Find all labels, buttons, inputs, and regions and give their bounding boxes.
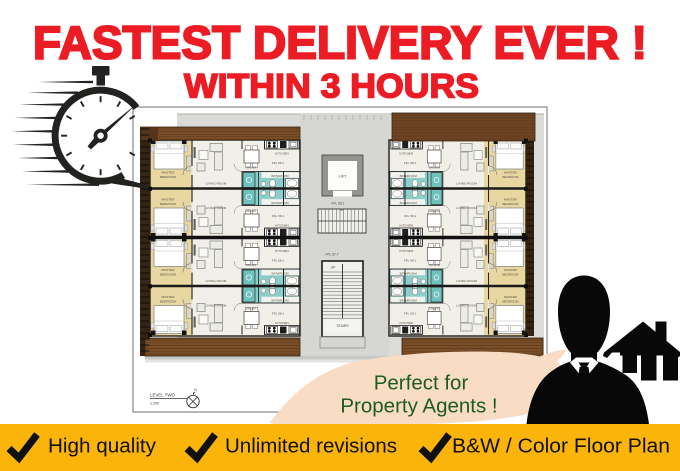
svg-text:FFL 58.1: FFL 58.1 (272, 161, 285, 165)
svg-text:LIVING ROOM: LIVING ROOM (456, 279, 477, 283)
svg-text:DINING: DINING (429, 307, 440, 311)
svg-text:FFL 58.1: FFL 58.1 (404, 312, 417, 316)
svg-text:STAIRS: STAIRS (337, 324, 350, 328)
svg-text:FFL 58.1: FFL 58.1 (404, 161, 417, 165)
svg-text:DINING: DINING (246, 263, 257, 267)
svg-text:MASTER: MASTER (162, 295, 176, 299)
svg-text:LIVING ROOM: LIVING ROOM (456, 206, 477, 210)
svg-text:BATHROOM: BATHROOM (400, 174, 418, 178)
svg-text:KITCHEN: KITCHEN (275, 152, 289, 156)
svg-text:BEDROOM: BEDROOM (502, 175, 518, 179)
svg-text:FFL 57.7: FFL 57.7 (325, 253, 338, 257)
svg-text:BATHROOM: BATHROOM (271, 272, 289, 276)
svg-text:KITCHEN: KITCHEN (275, 321, 289, 325)
svg-text:BATHROOM: BATHROOM (400, 299, 418, 303)
svg-text:FFL 58.1: FFL 58.1 (272, 259, 285, 263)
svg-text:DINING: DINING (429, 209, 440, 213)
svg-text:BATHROOM: BATHROOM (271, 174, 289, 178)
svg-text:MASTER: MASTER (162, 198, 176, 202)
svg-text:FFL 58.1: FFL 58.1 (331, 202, 344, 206)
svg-text:FFL 58.1: FFL 58.1 (272, 214, 285, 218)
svg-text:KITCHEN: KITCHEN (275, 249, 289, 253)
svg-text:LEVEL TWO: LEVEL TWO (150, 393, 175, 398)
svg-text:FASTEST DELIVERY EVER !: FASTEST DELIVERY EVER ! (33, 16, 647, 68)
svg-text:LIVING ROOM: LIVING ROOM (456, 182, 477, 186)
svg-text:BEDROOM: BEDROOM (160, 273, 176, 277)
svg-text:BEDROOM: BEDROOM (502, 300, 518, 304)
svg-text:FFL 58.1: FFL 58.1 (404, 214, 417, 218)
svg-text:BATHROOM: BATHROOM (271, 201, 289, 205)
svg-text:BEDROOM: BEDROOM (160, 202, 176, 206)
svg-text:KITCHEN: KITCHEN (400, 224, 414, 228)
svg-text:LIFT: LIFT (339, 175, 347, 179)
svg-text:KITCHEN: KITCHEN (400, 249, 414, 253)
svg-text:MASTER: MASTER (504, 268, 518, 272)
svg-text:DINING: DINING (429, 166, 440, 170)
svg-text:BEDROOM: BEDROOM (502, 202, 518, 206)
svg-text:LIVING ROOM: LIVING ROOM (206, 182, 227, 186)
svg-text:MASTER: MASTER (504, 295, 518, 299)
svg-text:LIVING ROOM: LIVING ROOM (206, 206, 227, 210)
svg-text:UP: UP (331, 266, 336, 270)
svg-text:LIVING ROOM: LIVING ROOM (206, 304, 227, 308)
svg-text:Property Agents !: Property Agents ! (340, 395, 497, 418)
svg-text:BATHROOM: BATHROOM (400, 201, 418, 205)
svg-text:BEDROOM: BEDROOM (502, 273, 518, 277)
svg-text:LIVING ROOM: LIVING ROOM (206, 279, 227, 283)
svg-text:DINING: DINING (246, 166, 257, 170)
svg-text:KITCHEN: KITCHEN (400, 321, 414, 325)
svg-text:BATHROOM: BATHROOM (271, 299, 289, 303)
svg-text:FFL 58.1: FFL 58.1 (272, 312, 285, 316)
svg-text:MASTER: MASTER (162, 171, 176, 175)
svg-text:LIVING ROOM: LIVING ROOM (456, 304, 477, 308)
svg-text:KITCHEN: KITCHEN (275, 224, 289, 228)
svg-text:DINING: DINING (246, 307, 257, 311)
svg-text:High quality: High quality (48, 436, 156, 458)
svg-text:DINING: DINING (429, 263, 440, 267)
svg-text:BATHROOM: BATHROOM (400, 272, 418, 276)
svg-text:WITHIN 3 HOURS: WITHIN 3 HOURS (184, 68, 479, 106)
svg-text:UP: UP (340, 208, 345, 212)
svg-text:1:200: 1:200 (150, 402, 159, 406)
svg-text:Perfect for: Perfect for (374, 372, 469, 395)
svg-text:DINING: DINING (246, 209, 257, 213)
svg-text:KITCHEN: KITCHEN (400, 152, 414, 156)
svg-text:MASTER: MASTER (162, 268, 176, 272)
svg-text:BEDROOM: BEDROOM (160, 175, 176, 179)
svg-text:Unlimited revisions: Unlimited revisions (225, 436, 397, 458)
svg-text:B&W / Color Floor Plan: B&W / Color Floor Plan (452, 436, 670, 458)
svg-text:MASTER: MASTER (504, 198, 518, 202)
svg-text:BEDROOM: BEDROOM (160, 300, 176, 304)
svg-text:MASTER: MASTER (504, 171, 518, 175)
svg-text:FFL 58.1: FFL 58.1 (404, 259, 417, 263)
